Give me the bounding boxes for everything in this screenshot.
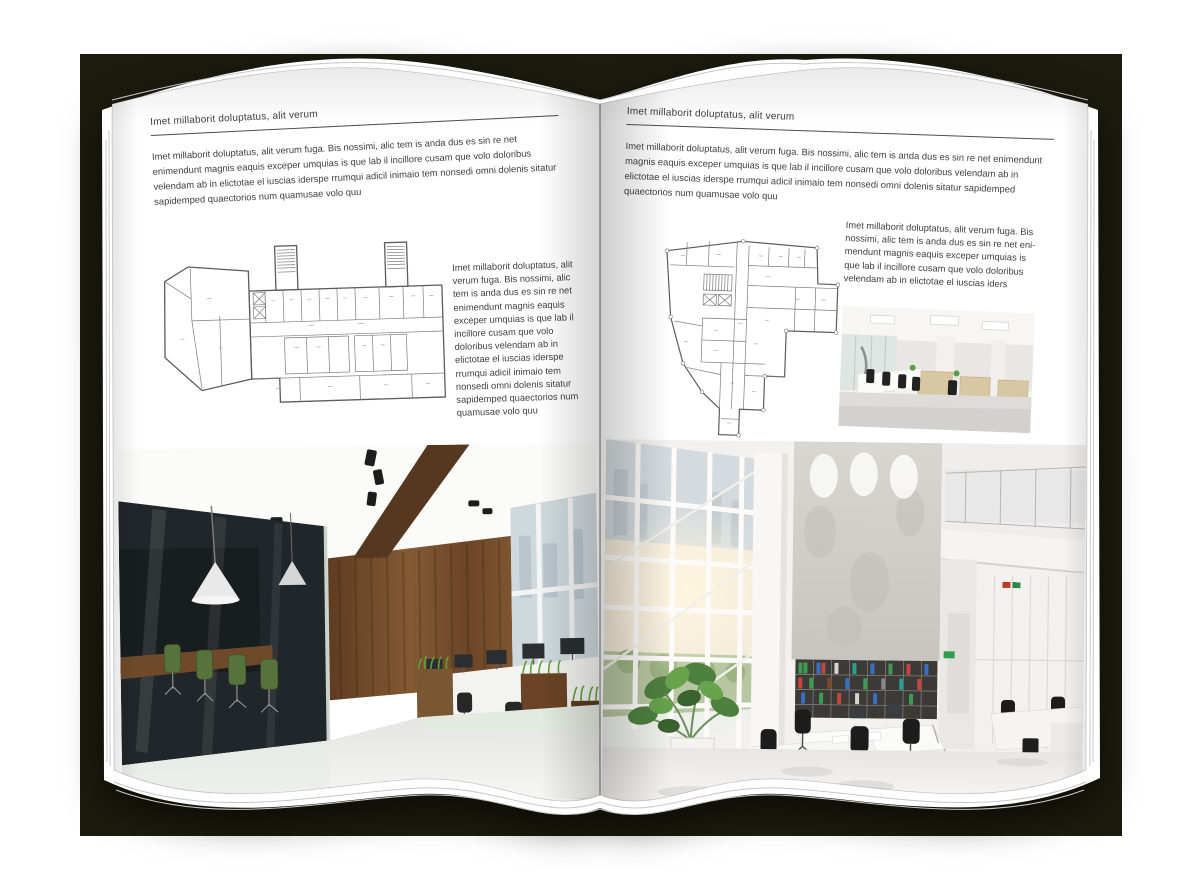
photo2-exit-sign xyxy=(944,651,955,658)
photo2-door xyxy=(947,613,970,713)
photo2-mezzanine xyxy=(941,443,1087,573)
left-intro-paragraph: Imet millaborit doluptatus, alit verum f… xyxy=(152,129,562,209)
right-page-header: Imet millaborit doluptatus, alit verum xyxy=(627,106,1055,132)
left-interior-photo xyxy=(118,443,601,806)
right-interior-photo xyxy=(602,439,1086,807)
photo2-wall-spotlights xyxy=(810,452,919,499)
right-office-photo-small xyxy=(838,306,1034,433)
plan1-outer-walls xyxy=(162,241,446,406)
plan2-outer-walls xyxy=(661,239,840,439)
right-intro-paragraph: Imet millaborit doluptatus, alit verum f… xyxy=(624,138,1054,213)
right-floorplan-caption: Imet millaborit doluptatus, alit verum f… xyxy=(843,219,1043,293)
photo2-bookshelf xyxy=(795,659,938,719)
magazine-spread-mockup: Imet millaborit doluptatus, alit verum I… xyxy=(0,0,1200,891)
right-header-block: Imet millaborit doluptatus, alit verum I… xyxy=(624,106,1055,213)
left-floorplan-caption: Imet millaborit doluptatus, alit verum f… xyxy=(452,258,587,420)
floor-plan-left xyxy=(155,221,456,422)
left-header-block: Imet millaborit doluptatus, alit verum I… xyxy=(150,97,562,209)
left-page-header: Imet millaborit doluptatus, alit verum xyxy=(150,97,558,128)
floor-plan-right xyxy=(640,220,847,445)
